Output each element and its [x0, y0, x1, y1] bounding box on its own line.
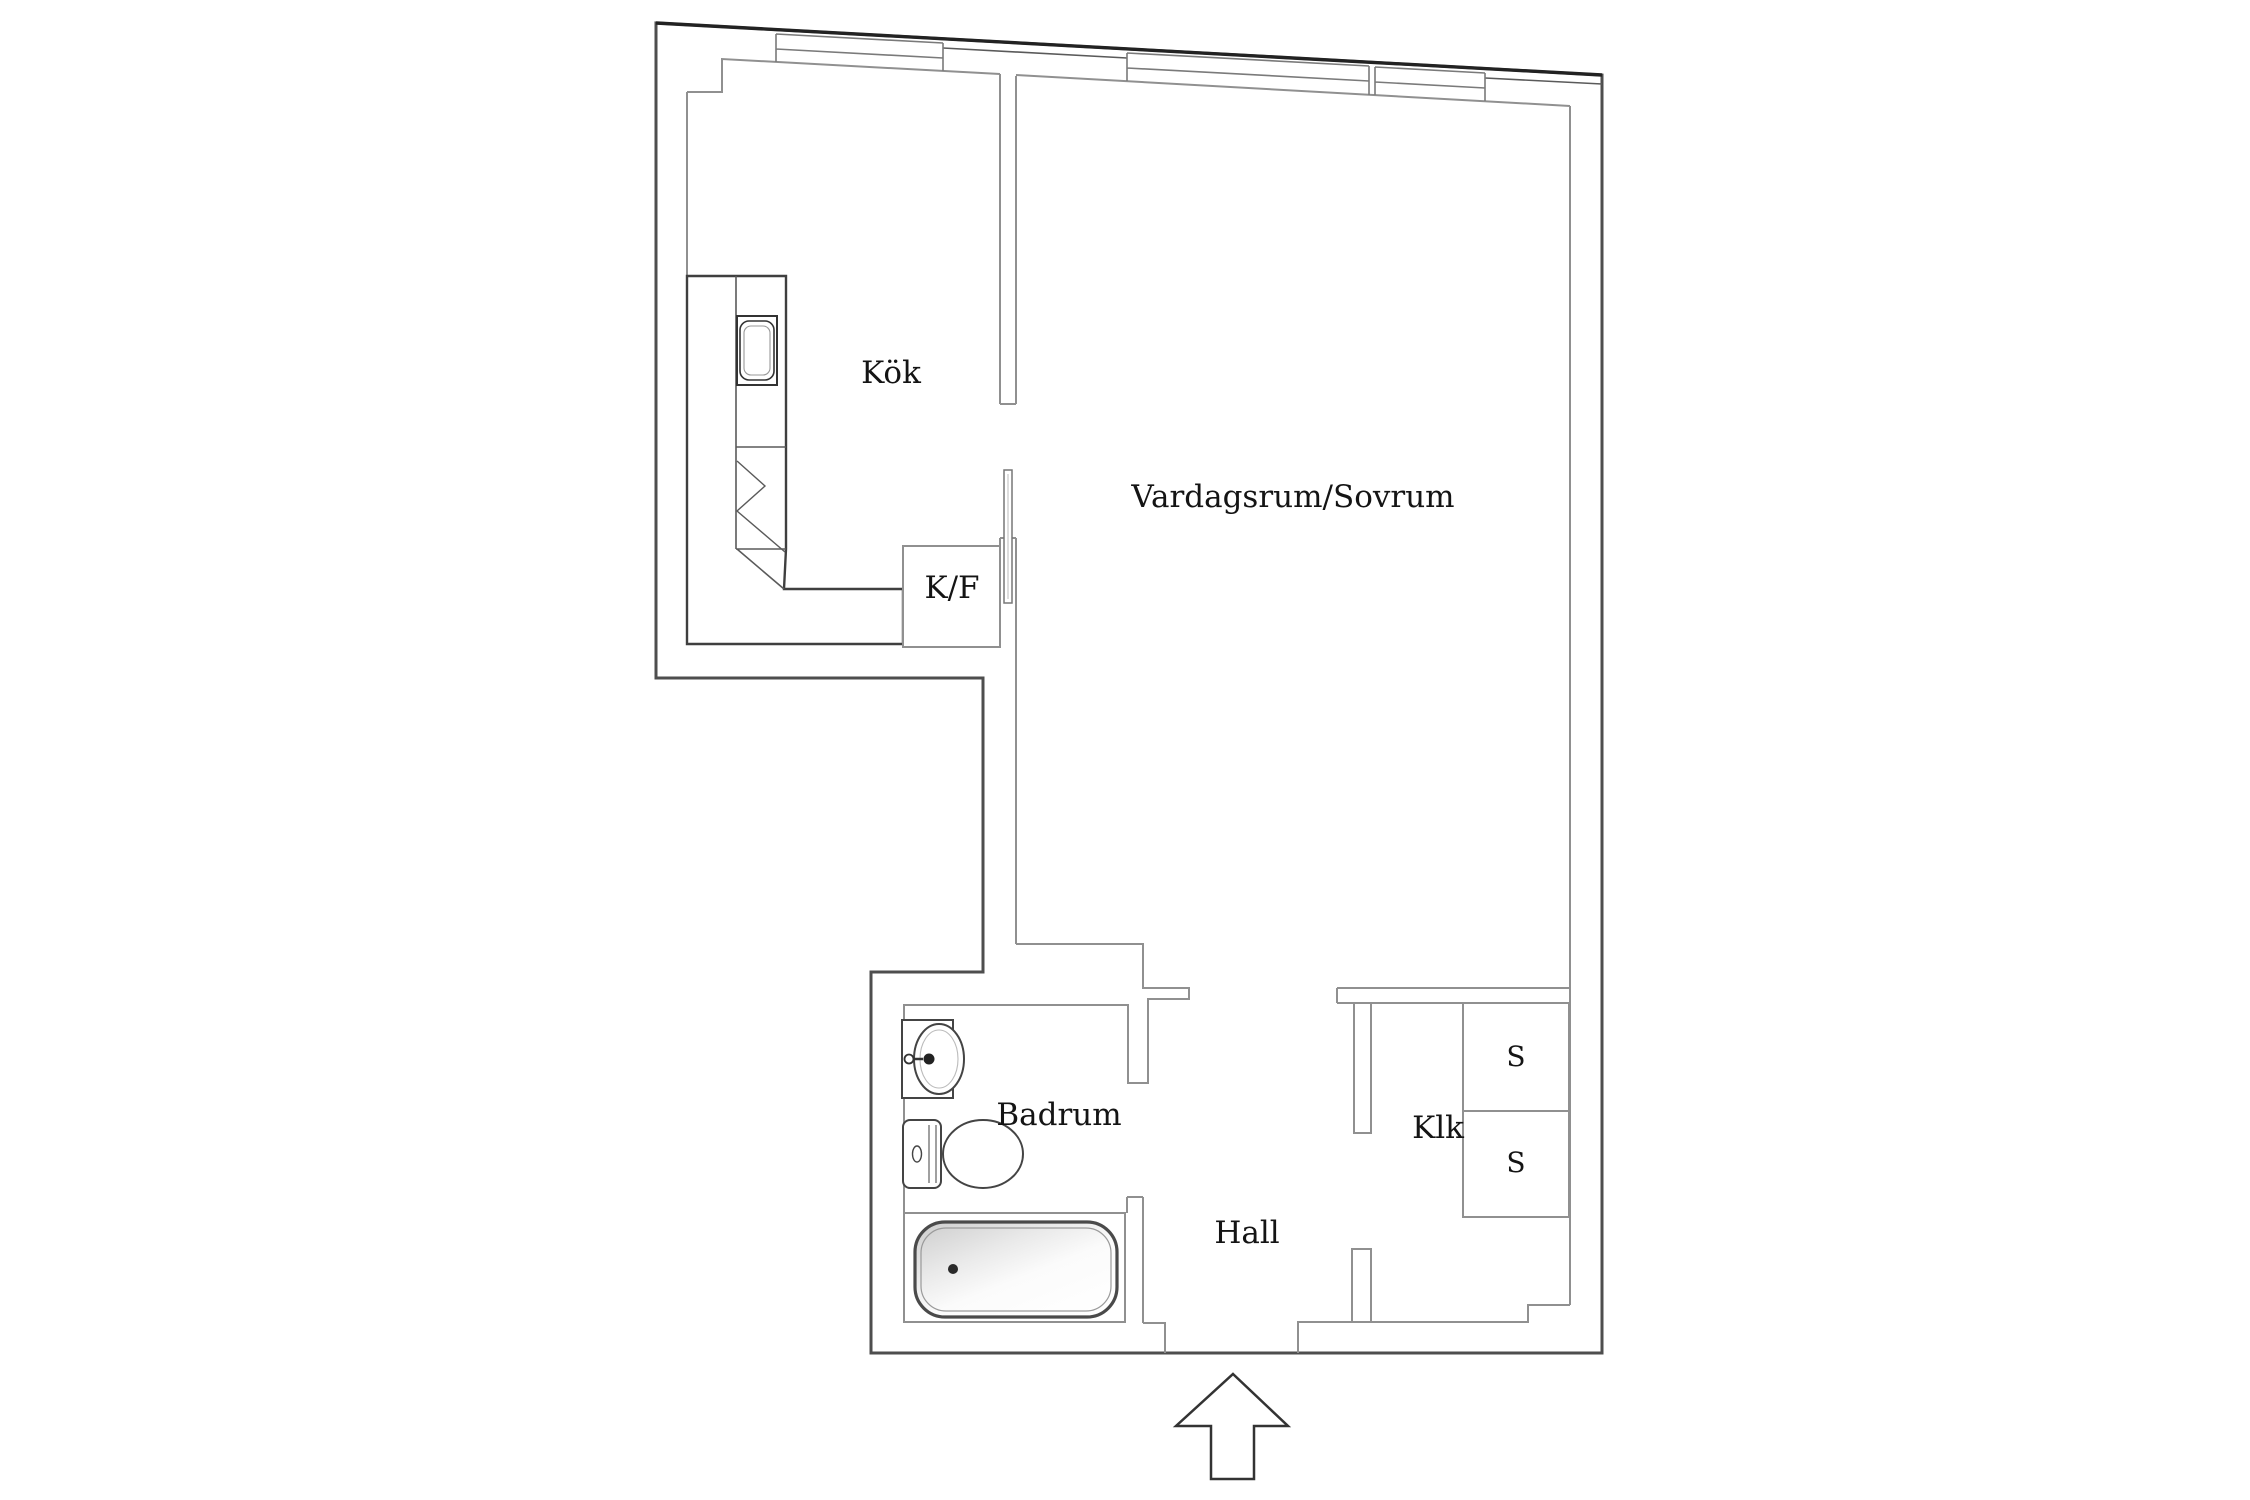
bottom-inner-wall-east: [1298, 1305, 1570, 1353]
entry-door-stub: [1352, 1249, 1371, 1322]
bathroom-door-south-jamb: [1127, 1197, 1165, 1353]
room-label-living: Vardagsrum/Sovrum: [1130, 479, 1454, 515]
wardrobe-label-top: S: [1506, 1040, 1525, 1073]
room-labels: Kök Vardagsrum/Sovrum K/F Badrum Hall Kl…: [861, 355, 1525, 1251]
kitchen-counter: [687, 276, 903, 644]
bathtub-drain: [948, 1264, 958, 1274]
room-label-kok: Kök: [861, 355, 921, 391]
floor-plan-canvas: Kök Vardagsrum/Sovrum K/F Badrum Hall Kl…: [0, 0, 2250, 1500]
wardrobe-label-bottom: S: [1506, 1146, 1525, 1179]
facade-second-line: [943, 48, 1602, 84]
room-label-badrum: Badrum: [996, 1097, 1121, 1133]
outer-boundary: [656, 23, 1602, 1353]
outer-walls: [656, 23, 1602, 1353]
room-label-klk: Klk: [1412, 1110, 1464, 1146]
kitchen-sink: [737, 316, 777, 385]
room-label-kf: K/F: [924, 570, 979, 606]
entry-arrow-icon: [1176, 1374, 1288, 1479]
floor-plan-drawing: Kök Vardagsrum/Sovrum K/F Badrum Hall Kl…: [0, 0, 2250, 1500]
bathtub: [915, 1222, 1117, 1317]
counter-outline: [687, 276, 903, 644]
room-label-hall: Hall: [1214, 1215, 1279, 1251]
washbasin: [902, 1020, 964, 1098]
top-facade-line: [656, 23, 1602, 75]
wardrobe-boxes: [1463, 1003, 1569, 1217]
wardrobes: [1463, 1003, 1569, 1217]
kitchen-door-leaf: [1004, 470, 1012, 603]
interior-walls: [687, 59, 1570, 1353]
